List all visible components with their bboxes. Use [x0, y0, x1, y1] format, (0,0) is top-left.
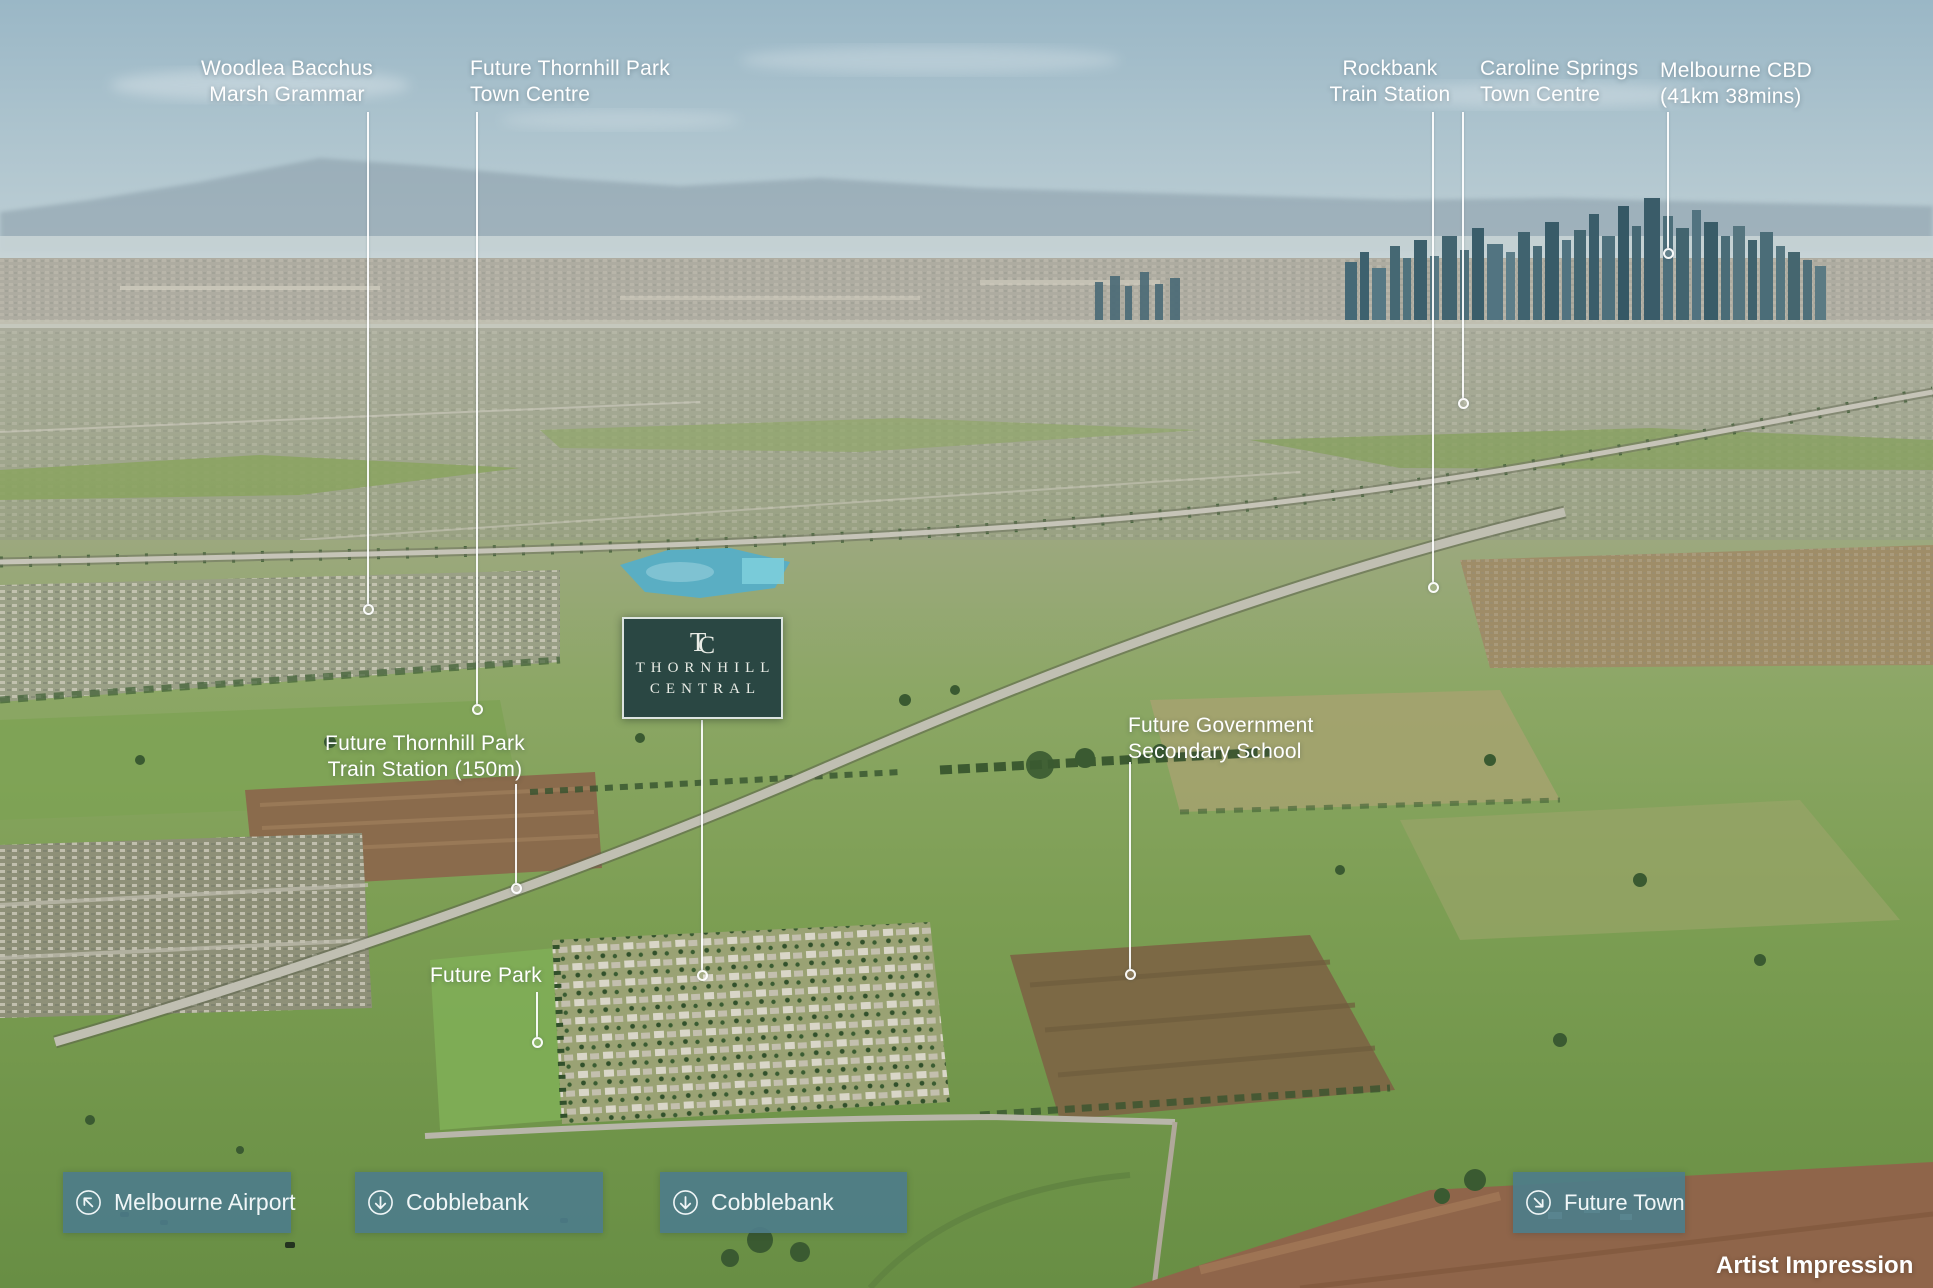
button-label: Cobblebank [711, 1189, 834, 1216]
leader-line-woodlea [367, 112, 369, 604]
arrow-down-right-circle-icon [1525, 1189, 1552, 1216]
callout-future-thornhill-park-train-station: Future Thornhill Park Train Station (150… [270, 731, 580, 783]
callout-future-thornhill-park-town-centre: Future Thornhill Park Town Centre [470, 56, 670, 108]
logo-wordmark-line2: CENTRAL [644, 679, 761, 700]
callout-rockbank-train-station: Rockbank Train Station [1280, 56, 1500, 108]
leader-dot-thornhill-central [697, 970, 708, 981]
tc-monogram-icon: TC [690, 628, 715, 658]
callout-line: Future Government [1128, 713, 1313, 739]
callout-line: Town Centre [470, 82, 670, 108]
callout-line: Marsh Grammar [177, 82, 397, 108]
callout-line: Rockbank [1280, 56, 1500, 82]
leader-dot-rockbank [1428, 582, 1439, 593]
callout-line: Caroline Springs [1480, 56, 1638, 82]
melbourne-airport-button[interactable]: Melbourne Airport [63, 1172, 291, 1233]
leader-line-rockbank [1432, 112, 1434, 582]
callout-future-government-secondary-school: Future Government Secondary School [1128, 713, 1313, 765]
callout-line: Train Station (150m) [270, 757, 580, 783]
callout-line: Melbourne CBD [1660, 58, 1812, 84]
arrow-down-circle-icon [367, 1189, 394, 1216]
callout-line: (41km 38mins) [1660, 84, 1812, 110]
button-label: Cobblebank [406, 1189, 529, 1216]
button-label: Future Town [1564, 1190, 1685, 1216]
callout-line: Future Thornhill Park [470, 56, 670, 82]
arrow-down-circle-icon [672, 1189, 699, 1216]
callout-line: Future Park [426, 963, 546, 989]
leader-dot-train-station [511, 883, 522, 894]
leader-dot-future-park [532, 1037, 543, 1048]
callout-future-park: Future Park [426, 963, 546, 989]
callout-line: Secondary School [1128, 739, 1313, 765]
aerial-artist-impression: Woodlea Bacchus Marsh Grammar Future Tho… [0, 0, 1933, 1288]
callout-line: Town Centre [1480, 82, 1638, 108]
leader-dot-secondary-school [1125, 969, 1136, 980]
leader-line-secondary-school [1129, 762, 1131, 969]
leader-line-melbourne-cbd [1667, 112, 1669, 248]
callout-woodlea-bacchus-marsh-grammar: Woodlea Bacchus Marsh Grammar [177, 56, 397, 108]
leader-dot-thornhill-town-centre [472, 704, 483, 715]
leader-line-thornhill-central [701, 720, 703, 970]
leader-dot-woodlea [363, 604, 374, 615]
artist-impression-note: Artist Impression [1716, 1252, 1913, 1280]
future-town-button[interactable]: Future Town [1513, 1172, 1685, 1233]
callout-line: Future Thornhill Park [270, 731, 580, 757]
leader-dot-melbourne-cbd [1663, 248, 1674, 259]
leader-line-thornhill-town-centre [476, 112, 478, 704]
cobblebank-button-1[interactable]: Cobblebank [355, 1172, 603, 1233]
thornhill-central-sign: TC THORNHILL CENTRAL [622, 617, 783, 719]
logo-wordmark-line1: THORNHILL [630, 658, 776, 679]
callout-caroline-springs-town-centre: Caroline Springs Town Centre [1480, 56, 1638, 108]
leader-line-future-park [536, 992, 538, 1037]
arrow-up-left-circle-icon [75, 1189, 102, 1216]
aerial-photo-background [0, 0, 1933, 1288]
leader-dot-caroline-springs [1458, 398, 1469, 409]
callout-line: Train Station [1280, 82, 1500, 108]
leader-line-caroline-springs [1462, 112, 1464, 398]
leader-line-train-station [515, 784, 517, 883]
button-label: Melbourne Airport [114, 1189, 296, 1216]
cobblebank-button-2[interactable]: Cobblebank [660, 1172, 907, 1233]
callout-melbourne-cbd: Melbourne CBD (41km 38mins) [1660, 58, 1812, 110]
callout-line: Woodlea Bacchus [177, 56, 397, 82]
